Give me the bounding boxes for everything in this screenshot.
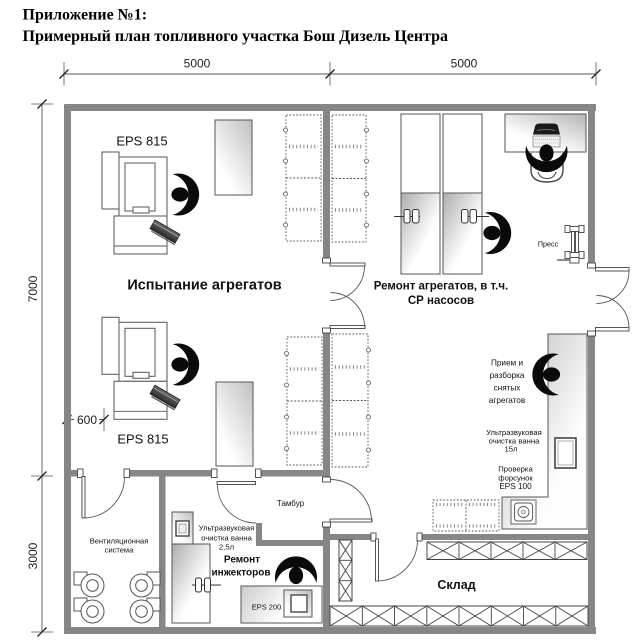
svg-text:Склад: Склад [437,578,475,592]
svg-text:разборка: разборка [490,371,525,380]
svg-text:Ремонт агрегатов, в т.ч.: Ремонт агрегатов, в т.ч. [374,281,509,293]
svg-text:Прием и: Прием и [491,359,523,368]
svg-text:Примерный план топливного учас: Примерный план топливного участка Бош Ди… [23,28,449,45]
svg-text:Ремонт: Ремонт [224,555,260,566]
svg-text:Приложение №1:: Приложение №1: [23,7,148,24]
svg-text:очистка ванна: очистка ванна [201,534,252,543]
svg-text:Ультразвуковая: Ультразвуковая [199,524,255,533]
svg-text:Тамбур: Тамбур [277,499,305,508]
svg-text:2,5л: 2,5л [219,543,234,552]
svg-text:агрегатов: агрегатов [489,396,525,405]
svg-text:EPS 815: EPS 815 [116,134,167,149]
svg-text:15л: 15л [504,445,517,454]
svg-text:Вентиляционная: Вентиляционная [90,537,149,546]
svg-text:EPS 815: EPS 815 [117,432,168,447]
svg-text:СР насосов: СР насосов [408,295,474,307]
svg-text:Испытание агрегатов: Испытание агрегатов [127,278,281,294]
svg-text:3000: 3000 [26,542,40,569]
svg-text:5000: 5000 [451,57,478,71]
svg-text:EPS 200: EPS 200 [252,603,282,612]
svg-text:7000: 7000 [26,275,40,302]
svg-text:инжекторов: инжекторов [212,568,271,579]
svg-text:снятых: снятых [494,384,521,393]
svg-text:Проверка: Проверка [498,465,533,474]
svg-text:система: система [105,546,134,555]
svg-text:EPS 100: EPS 100 [499,482,532,491]
svg-text:600: 600 [77,413,97,427]
svg-text:5000: 5000 [184,57,211,71]
svg-text:Пресс: Пресс [538,240,559,249]
